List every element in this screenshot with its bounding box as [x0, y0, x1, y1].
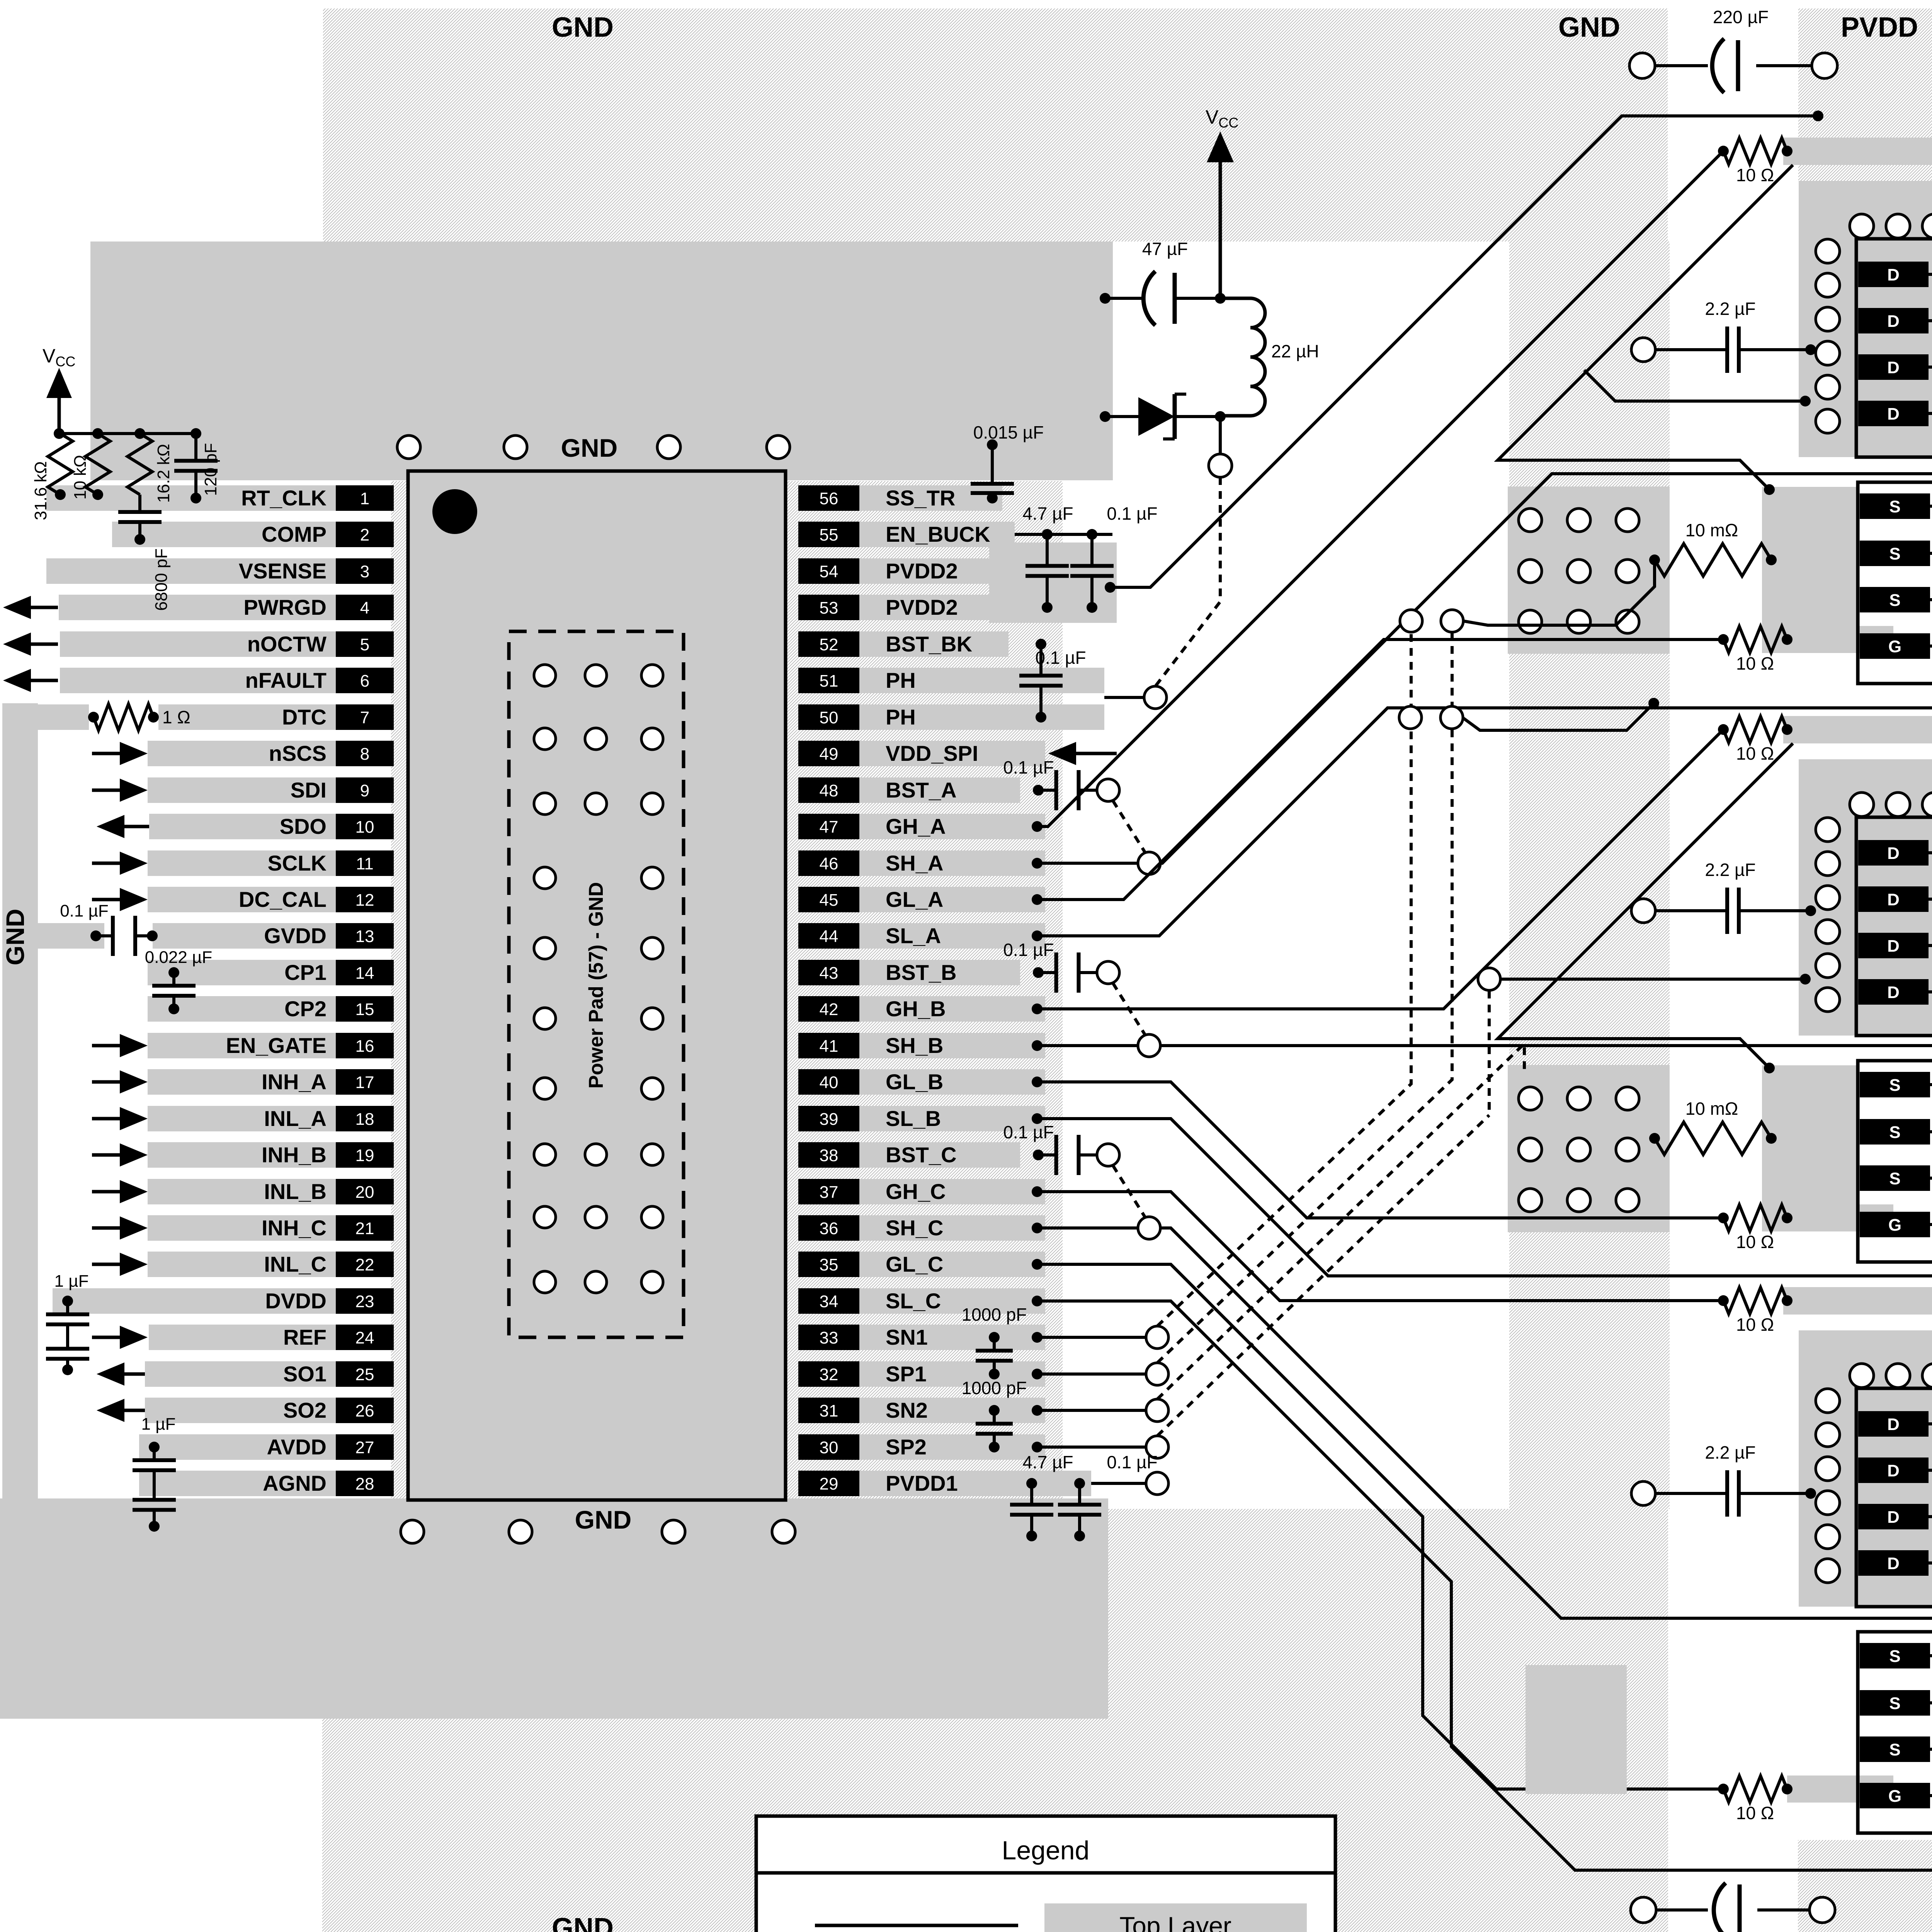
svg-text:33: 33	[820, 1328, 838, 1347]
svg-text:31: 31	[820, 1401, 838, 1420]
svg-text:13: 13	[355, 927, 374, 946]
svg-text:26: 26	[355, 1401, 374, 1420]
svg-text:10 Ω: 10 Ω	[1736, 165, 1774, 185]
svg-text:D: D	[1887, 405, 1900, 423]
svg-text:50: 50	[820, 708, 838, 727]
svg-text:INH_B: INH_B	[262, 1143, 327, 1167]
svg-text:G: G	[1888, 637, 1901, 656]
svg-text:SN1: SN1	[886, 1325, 928, 1349]
svg-text:32: 32	[820, 1365, 838, 1384]
svg-text:SO1: SO1	[283, 1362, 327, 1386]
svg-text:0.1 µF: 0.1 µF	[1107, 1452, 1157, 1472]
svg-text:10 Ω: 10 Ω	[1736, 1803, 1774, 1823]
svg-text:0.1 µF: 0.1 µF	[1003, 757, 1054, 777]
svg-text:0.1 µF: 0.1 µF	[1003, 940, 1054, 960]
svg-text:INL_A: INL_A	[264, 1106, 327, 1131]
svg-text:D: D	[1887, 1415, 1900, 1434]
svg-text:AVDD: AVDD	[267, 1435, 327, 1459]
svg-text:56: 56	[820, 489, 838, 508]
svg-text:BST_B: BST_B	[886, 960, 957, 985]
svg-text:D: D	[1887, 1554, 1900, 1573]
svg-text:14: 14	[355, 964, 374, 983]
svg-text:GND: GND	[1, 909, 29, 966]
svg-text:16.2 kΩ: 16.2 kΩ	[154, 444, 173, 503]
svg-text:1000 pF: 1000 pF	[962, 1378, 1027, 1398]
svg-text:38: 38	[820, 1146, 838, 1165]
svg-text:10 Ω: 10 Ω	[1736, 1232, 1774, 1252]
svg-text:GH_A: GH_A	[886, 814, 946, 838]
svg-text:10 Ω: 10 Ω	[1736, 743, 1774, 764]
svg-text:CP2: CP2	[284, 997, 327, 1021]
svg-text:7: 7	[360, 708, 369, 727]
svg-text:0.022 µF: 0.022 µF	[145, 948, 213, 967]
svg-text:12: 12	[355, 891, 374, 910]
svg-text:51: 51	[820, 672, 838, 690]
svg-text:30: 30	[820, 1438, 838, 1457]
svg-text:PVDD1: PVDD1	[886, 1471, 958, 1495]
svg-text:11: 11	[356, 854, 374, 873]
svg-text:34: 34	[820, 1292, 838, 1311]
svg-text:PH: PH	[886, 705, 916, 729]
svg-text:45: 45	[820, 891, 838, 910]
svg-text:4.7 µF: 4.7 µF	[1022, 503, 1073, 524]
svg-text:4: 4	[360, 599, 369, 617]
svg-text:SH_A: SH_A	[886, 851, 943, 875]
svg-text:37: 37	[820, 1183, 838, 1202]
svg-text:47 µF: 47 µF	[1142, 239, 1188, 259]
svg-text:10: 10	[355, 818, 374, 837]
svg-text:SS_TR: SS_TR	[886, 486, 956, 510]
svg-text:220 µF: 220 µF	[1713, 7, 1769, 27]
svg-text:GH_B: GH_B	[886, 997, 946, 1021]
svg-text:GH_C: GH_C	[886, 1179, 946, 1204]
svg-text:S: S	[1889, 1076, 1900, 1095]
svg-text:41: 41	[820, 1037, 838, 1056]
svg-text:42: 42	[820, 1000, 838, 1019]
svg-text:49: 49	[820, 745, 838, 764]
svg-text:44: 44	[820, 927, 838, 946]
svg-text:SP2: SP2	[886, 1435, 927, 1459]
svg-text:SO2: SO2	[283, 1398, 327, 1422]
svg-text:nOCTW: nOCTW	[247, 632, 327, 656]
svg-text:3: 3	[360, 562, 369, 581]
svg-text:BST_A: BST_A	[886, 778, 957, 802]
svg-text:Legend: Legend	[1002, 1836, 1090, 1865]
svg-text:D: D	[1887, 937, 1900, 956]
svg-text:15: 15	[355, 1000, 374, 1019]
svg-text:47: 47	[820, 818, 838, 837]
svg-text:6800 pF: 6800 pF	[152, 548, 171, 611]
svg-text:52: 52	[820, 635, 838, 654]
svg-text:GND: GND	[552, 12, 614, 43]
svg-text:1 µF: 1 µF	[54, 1272, 89, 1291]
svg-text:GND: GND	[1558, 12, 1620, 43]
svg-text:2.2 µF: 2.2 µF	[1705, 299, 1755, 319]
svg-text:GL_A: GL_A	[886, 887, 943, 912]
svg-text:46: 46	[820, 854, 838, 873]
svg-text:S: S	[1889, 1123, 1900, 1142]
svg-text:PVDD2: PVDD2	[886, 595, 958, 619]
svg-text:SL_A: SL_A	[886, 923, 941, 948]
svg-text:nFAULT: nFAULT	[245, 668, 327, 692]
svg-text:24: 24	[355, 1328, 374, 1347]
svg-text:GL_B: GL_B	[886, 1070, 943, 1094]
svg-text:PH: PH	[886, 668, 916, 692]
svg-text:36: 36	[820, 1219, 838, 1238]
svg-text:0.1 µF: 0.1 µF	[1035, 648, 1086, 668]
svg-text:SH_C: SH_C	[886, 1216, 943, 1240]
svg-text:GL_C: GL_C	[886, 1252, 943, 1276]
svg-text:D: D	[1887, 890, 1900, 909]
svg-text:S: S	[1889, 1740, 1900, 1759]
svg-text:COMP: COMP	[262, 522, 327, 546]
svg-text:39: 39	[820, 1110, 838, 1129]
svg-text:10 kΩ: 10 kΩ	[71, 455, 90, 500]
svg-text:PVDD: PVDD	[1841, 12, 1918, 43]
svg-text:1000 pF: 1000 pF	[962, 1304, 1027, 1325]
svg-text:0.1 µF: 0.1 µF	[1107, 503, 1157, 524]
svg-text:G: G	[1888, 1787, 1901, 1806]
svg-text:D: D	[1887, 983, 1900, 1002]
svg-text:55: 55	[820, 526, 838, 544]
svg-text:GND: GND	[575, 1505, 632, 1534]
svg-text:PVDD2: PVDD2	[886, 559, 958, 583]
svg-text:29: 29	[820, 1475, 838, 1493]
svg-text:D: D	[1887, 265, 1900, 284]
svg-text:40: 40	[820, 1073, 838, 1092]
svg-text:0.1 µF: 0.1 µF	[60, 901, 109, 920]
svg-text:Top Layer: Top Layer	[1119, 1912, 1231, 1932]
svg-text:BST_C: BST_C	[886, 1143, 957, 1167]
svg-text:RT_CLK: RT_CLK	[241, 486, 327, 510]
svg-text:S: S	[1889, 1169, 1900, 1188]
svg-text:2: 2	[360, 526, 369, 544]
svg-text:9: 9	[360, 781, 369, 800]
svg-text:PWRGD: PWRGD	[243, 595, 327, 619]
svg-text:BST_BK: BST_BK	[886, 632, 972, 656]
svg-text:6: 6	[360, 672, 369, 690]
svg-text:0.1 µF: 0.1 µF	[1003, 1122, 1054, 1142]
svg-text:5: 5	[360, 635, 369, 654]
svg-text:54: 54	[820, 562, 838, 581]
svg-text:EN_GATE: EN_GATE	[226, 1033, 327, 1058]
svg-text:SCLK: SCLK	[268, 851, 327, 875]
svg-text:21: 21	[355, 1219, 374, 1238]
svg-text:VSENSE: VSENSE	[239, 559, 327, 583]
svg-text:S: S	[1889, 1694, 1900, 1713]
svg-text:D: D	[1887, 358, 1900, 377]
svg-text:S: S	[1889, 544, 1900, 563]
svg-text:SL_B: SL_B	[886, 1106, 941, 1131]
svg-text:INL_B: INL_B	[264, 1179, 327, 1204]
svg-text:SN2: SN2	[886, 1398, 928, 1422]
svg-text:25: 25	[355, 1365, 374, 1384]
svg-text:SH_B: SH_B	[886, 1033, 943, 1058]
svg-text:G: G	[1888, 1216, 1901, 1235]
svg-text:53: 53	[820, 599, 838, 617]
svg-text:S: S	[1889, 1647, 1900, 1666]
svg-text:1 Ω: 1 Ω	[162, 707, 190, 727]
svg-text:27: 27	[355, 1438, 374, 1457]
svg-text:8: 8	[360, 745, 369, 764]
svg-text:43: 43	[820, 964, 838, 983]
svg-text:22: 22	[355, 1255, 374, 1274]
svg-text:1: 1	[360, 489, 369, 508]
svg-text:S: S	[1889, 497, 1900, 516]
svg-text:SDO: SDO	[280, 814, 327, 838]
svg-text:EN_BUCK: EN_BUCK	[886, 522, 990, 546]
svg-text:DTC: DTC	[282, 705, 327, 729]
svg-text:22 µH: 22 µH	[1271, 341, 1319, 361]
svg-text:Power Pad (57) - GND: Power Pad (57) - GND	[585, 882, 607, 1089]
svg-text:GND: GND	[561, 434, 618, 462]
svg-text:4.7 µF: 4.7 µF	[1022, 1452, 1073, 1472]
svg-text:18: 18	[355, 1110, 374, 1129]
svg-text:INL_C: INL_C	[264, 1252, 327, 1276]
svg-text:28: 28	[355, 1475, 374, 1493]
svg-text:2.2 µF: 2.2 µF	[1705, 1442, 1755, 1463]
svg-text:nSCS: nSCS	[269, 741, 327, 765]
svg-text:10 mΩ: 10 mΩ	[1685, 520, 1738, 540]
svg-text:20: 20	[355, 1183, 374, 1202]
svg-text:10 mΩ: 10 mΩ	[1685, 1099, 1738, 1119]
svg-text:17: 17	[355, 1073, 374, 1092]
svg-text:SL_C: SL_C	[886, 1289, 941, 1313]
svg-text:DVDD: DVDD	[265, 1289, 327, 1313]
svg-text:0.015 µF: 0.015 µF	[973, 422, 1044, 442]
svg-text:INH_A: INH_A	[262, 1070, 327, 1094]
svg-text:10 Ω: 10 Ω	[1736, 653, 1774, 673]
svg-text:2.2 µF: 2.2 µF	[1705, 860, 1755, 880]
svg-text:48: 48	[820, 781, 838, 800]
svg-text:INH_C: INH_C	[262, 1216, 327, 1240]
svg-text:D: D	[1887, 312, 1900, 331]
svg-text:D: D	[1887, 1461, 1900, 1480]
svg-text:D: D	[1887, 844, 1900, 863]
svg-text:1 µF: 1 µF	[141, 1415, 176, 1434]
svg-text:REF: REF	[283, 1325, 327, 1349]
svg-text:S: S	[1889, 591, 1900, 610]
svg-text:35: 35	[820, 1255, 838, 1274]
svg-text:AGND: AGND	[263, 1471, 327, 1495]
svg-text:D: D	[1887, 1508, 1900, 1527]
svg-text:SDI: SDI	[291, 778, 327, 802]
svg-text:DC_CAL: DC_CAL	[239, 887, 327, 912]
svg-text:VDD_SPI: VDD_SPI	[886, 741, 978, 765]
svg-text:SP1: SP1	[886, 1362, 927, 1386]
svg-text:31.6 kΩ: 31.6 kΩ	[31, 461, 50, 520]
svg-text:GND: GND	[552, 1913, 614, 1932]
svg-text:CP1: CP1	[284, 960, 327, 985]
svg-text:16: 16	[355, 1037, 374, 1056]
svg-text:23: 23	[355, 1292, 374, 1311]
svg-text:GVDD: GVDD	[264, 923, 327, 948]
svg-text:120 pF: 120 pF	[201, 443, 220, 496]
svg-text:19: 19	[355, 1146, 374, 1165]
svg-text:10 Ω: 10 Ω	[1736, 1315, 1774, 1335]
